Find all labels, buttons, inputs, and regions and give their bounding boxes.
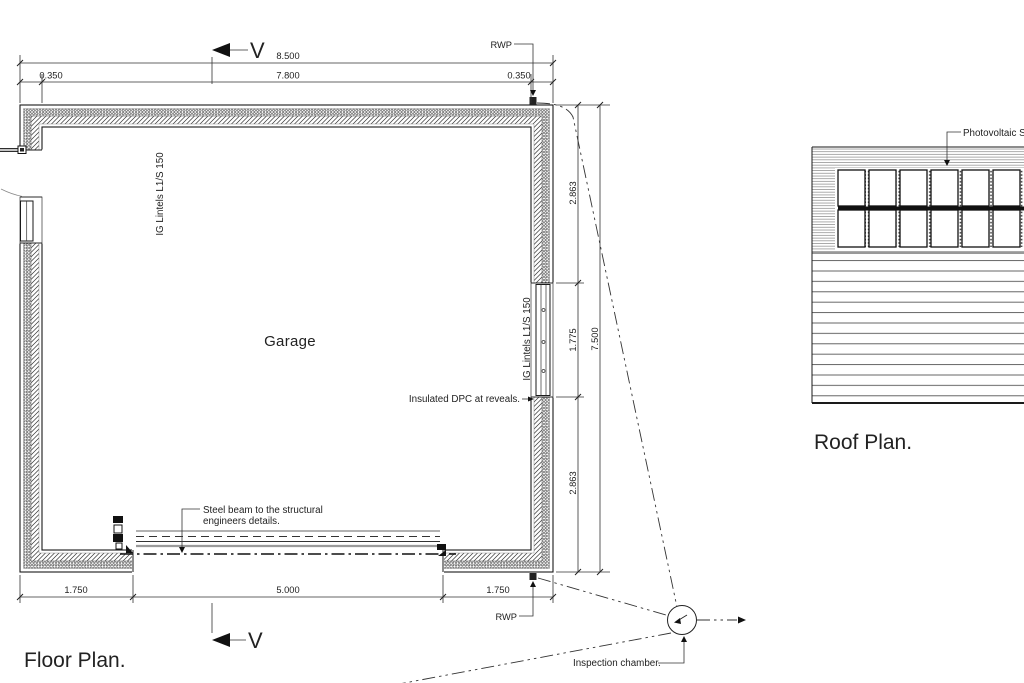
inspection-chamber-symbol bbox=[668, 606, 697, 635]
section-arrow-icon bbox=[212, 43, 230, 57]
dim-door-width: 5.000 bbox=[276, 585, 299, 595]
dim-bottom-left: 1.750 bbox=[64, 585, 87, 595]
door-leaf bbox=[0, 149, 19, 152]
chamber-leader bbox=[658, 641, 684, 663]
lintel-label-left: IG Lintels L1/S 150 bbox=[155, 152, 166, 236]
drain-line-top-rwp bbox=[537, 103, 677, 607]
solar-panel bbox=[869, 210, 896, 247]
roof-plan: Photovoltaic Sola Roof Plan. bbox=[812, 128, 1024, 454]
dim-wall-left: 0.350 bbox=[39, 71, 62, 81]
solar-panel bbox=[838, 210, 865, 247]
section-letter-bottom: V bbox=[248, 628, 263, 653]
solar-panel bbox=[931, 210, 958, 247]
section-letter-top: V bbox=[250, 38, 265, 63]
dim-right-mid: 1.775 bbox=[568, 328, 578, 351]
panel-row-divider bbox=[838, 207, 1024, 211]
door-operator-mechanism bbox=[113, 516, 133, 553]
rwp-label-top: RWP bbox=[490, 40, 512, 50]
dim-clear-width: 7.800 bbox=[276, 71, 299, 81]
solar-panel bbox=[931, 170, 958, 206]
solar-panel-array bbox=[835, 168, 1024, 250]
architectural-drawing-sheet: Photovoltaic Sola Roof Plan. bbox=[0, 0, 1024, 683]
chamber-leader-arrowhead bbox=[681, 636, 687, 642]
rwp-top-symbol bbox=[530, 97, 537, 105]
solar-panel bbox=[962, 210, 989, 247]
dim-wall-right: 0.350 bbox=[507, 71, 530, 81]
photovoltaic-label: Photovoltaic Sola bbox=[963, 128, 1024, 139]
roof-lower-slope-tiles bbox=[812, 253, 1024, 403]
lintel-label-right: IG Lintels L1/S 150 bbox=[522, 297, 533, 381]
drain-line-bottom-rwp bbox=[538, 578, 666, 615]
floor-plan-title: Floor Plan. bbox=[24, 649, 126, 672]
dim-right-bottom: 2.863 bbox=[568, 471, 578, 494]
beam-label-line2: engineers details. bbox=[203, 516, 280, 527]
dpc-label: Insulated DPC at reveals. bbox=[409, 394, 520, 405]
solar-panel bbox=[993, 170, 1020, 206]
annotations: Steel beam to the structural engineers d… bbox=[179, 40, 687, 669]
beam-leader-line bbox=[182, 509, 200, 548]
room-label: Garage bbox=[264, 333, 316, 350]
rwp-bottom-arrowhead bbox=[530, 581, 536, 587]
dimension-lines bbox=[20, 63, 600, 597]
solar-panel bbox=[962, 170, 989, 206]
section-marker-top: V bbox=[212, 38, 265, 84]
right-window-frame bbox=[536, 285, 550, 396]
beam-label-line1: Steel beam to the structural bbox=[203, 505, 323, 516]
rwp-top-leader bbox=[514, 44, 533, 91]
dimension-ticks bbox=[17, 60, 603, 600]
inspection-chamber-label: Inspection chamber. bbox=[573, 658, 661, 669]
dim-overall-depth: 7.500 bbox=[590, 327, 600, 350]
section-marker-bottom: V bbox=[212, 603, 263, 653]
dim-overall-width: 8.500 bbox=[276, 51, 299, 61]
solar-panel bbox=[900, 210, 927, 247]
opening-mask-garage bbox=[132, 549, 444, 574]
drawing-svg: Photovoltaic Sola Roof Plan. bbox=[0, 0, 1024, 683]
section-arrow-icon bbox=[212, 633, 230, 647]
door-hinge-pin bbox=[20, 148, 24, 152]
rwp-label-bottom: RWP bbox=[495, 612, 517, 622]
rwp-bottom-symbol bbox=[530, 573, 537, 580]
dim-right-top: 2.863 bbox=[568, 181, 578, 204]
solar-panel bbox=[869, 170, 896, 206]
flow-direction-arrowhead bbox=[738, 617, 746, 624]
solar-panel bbox=[900, 170, 927, 206]
rwp-bottom-leader bbox=[519, 586, 533, 616]
solar-panel bbox=[838, 170, 865, 206]
roof-plan-title: Roof Plan. bbox=[814, 431, 912, 454]
solar-panel bbox=[993, 210, 1020, 247]
dim-bottom-right: 1.750 bbox=[486, 585, 509, 595]
